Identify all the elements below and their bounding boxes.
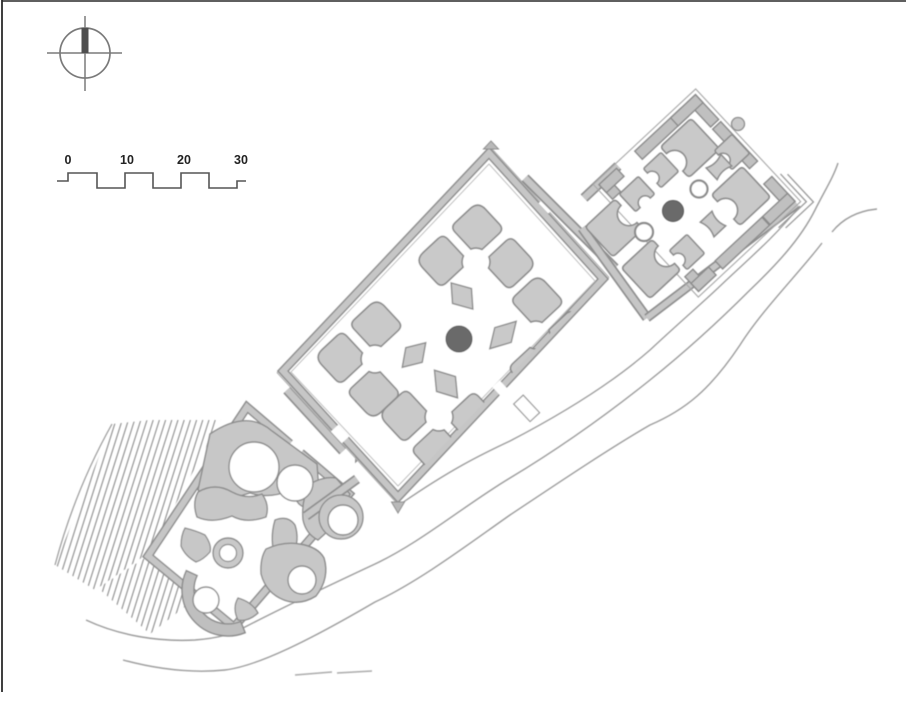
svg-text:0: 0 [65,153,72,167]
svg-text:10: 10 [120,153,134,167]
svg-text:30: 30 [234,153,248,167]
svg-text:20: 20 [177,153,191,167]
